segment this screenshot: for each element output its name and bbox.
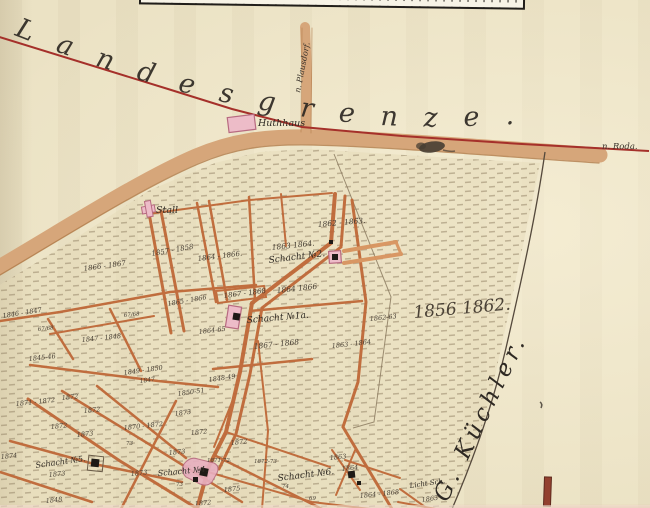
parcel-year-label: 73 [176, 482, 183, 488]
ink-speck [540, 402, 542, 408]
shaft-symbol [232, 313, 240, 321]
scale-bar [140, 0, 524, 9]
n-roda-label: n. Roda. [602, 142, 638, 152]
huthhaus-building [227, 114, 256, 132]
chimney-structure [543, 477, 551, 506]
parcel-year-label: 74 [282, 484, 289, 490]
shaft-symbol [332, 254, 338, 260]
parcel-year-label: 69 [309, 496, 316, 502]
map-canvas: Landesgrenze. G. Küchler. n. Roda. n. Pl… [0, 0, 650, 508]
landesgrenze-label: Landesgrenze. [11, 12, 541, 133]
shaft-symbol [357, 481, 361, 485]
shaft-symbol [91, 459, 100, 468]
parcel-year-label: 73 [126, 441, 133, 447]
shaft-symbol [193, 477, 198, 482]
parcel-year-label: 1871-72 [207, 458, 230, 464]
parcel-year-label: 1872-73 [254, 459, 277, 465]
map-svg: Landesgrenze. G. Küchler. n. Roda. n. Pl… [0, 0, 650, 508]
huthhaus-label: Huthhaus [257, 118, 305, 129]
schacht1a-structure [225, 305, 241, 329]
stall-label: Stall [156, 205, 178, 216]
shaft-symbol [329, 240, 333, 244]
